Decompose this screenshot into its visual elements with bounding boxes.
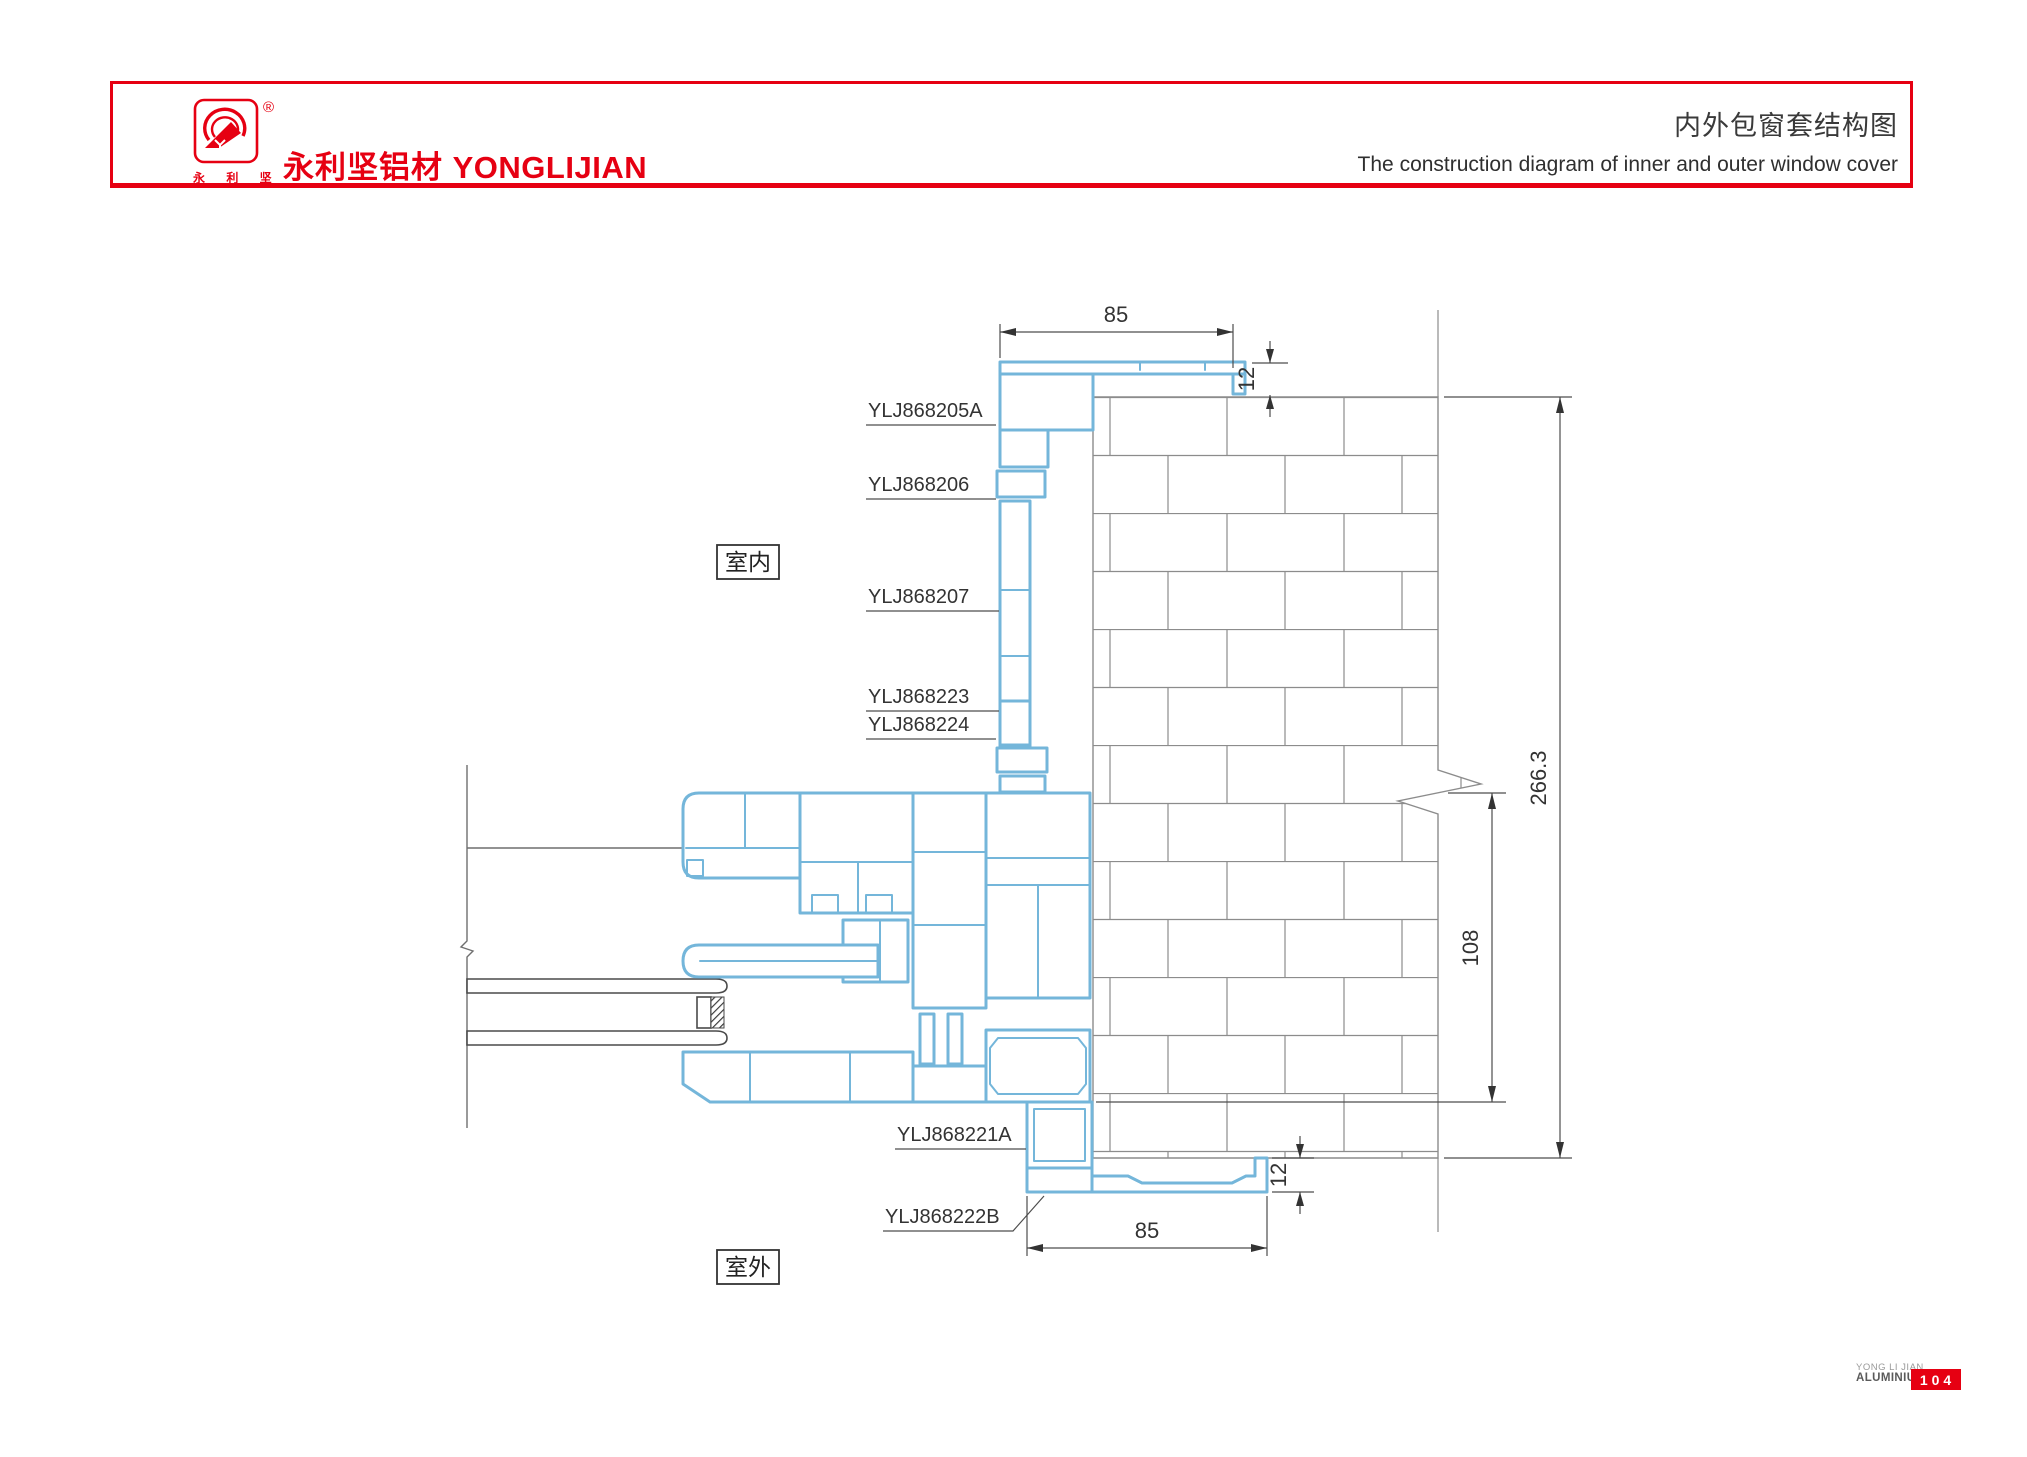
part-label-868206: YLJ868206 bbox=[866, 474, 996, 499]
svg-text:YLJ868223: YLJ868223 bbox=[868, 686, 969, 708]
svg-text:室外: 室外 bbox=[725, 1254, 771, 1280]
footer: YONG LI JIAN ALUMINIUM 104 bbox=[1856, 1363, 2016, 1399]
profile-868206 bbox=[997, 471, 1045, 497]
dim-bottom-width: 85 bbox=[1027, 1196, 1267, 1256]
construction-diagram: 85 12 266.3 10 bbox=[0, 0, 2027, 1457]
window-frame-assembly bbox=[683, 793, 1090, 1102]
part-label-868224: YLJ868224 bbox=[866, 714, 996, 739]
profile-868221A bbox=[1027, 1102, 1092, 1168]
glass-unit bbox=[467, 979, 727, 1045]
svg-text:YLJ868206: YLJ868206 bbox=[868, 474, 969, 496]
part-label-868207: YLJ868207 bbox=[866, 586, 999, 611]
svg-text:YLJ868207: YLJ868207 bbox=[868, 586, 969, 608]
svg-text:室内: 室内 bbox=[725, 549, 771, 575]
dim-top-width: 85 bbox=[1000, 302, 1233, 368]
glass-pane-inner bbox=[467, 1031, 727, 1045]
svg-text:YLJ868224: YLJ868224 bbox=[868, 714, 969, 736]
break-line bbox=[461, 765, 473, 1128]
part-label-868205A: YLJ868205A bbox=[866, 400, 996, 425]
svg-text:YLJ868221A: YLJ868221A bbox=[897, 1124, 1012, 1146]
wall-section bbox=[1093, 397, 1481, 1158]
part-label-868223: YLJ868223 bbox=[866, 686, 999, 711]
page: ® 永 利 坚 永利坚铝材 YONGLIJIAN 内外包窗套结构图 The co… bbox=[0, 0, 2027, 1457]
svg-text:12: 12 bbox=[1234, 367, 1259, 391]
part-label-868222B: YLJ868222B bbox=[883, 1196, 1044, 1231]
svg-text:YLJ868205A: YLJ868205A bbox=[868, 400, 983, 422]
glass-pane-outer bbox=[467, 979, 727, 993]
profile-868224 bbox=[997, 748, 1047, 792]
svg-text:108: 108 bbox=[1458, 930, 1483, 967]
svg-text:12: 12 bbox=[1266, 1163, 1291, 1187]
svg-text:85: 85 bbox=[1135, 1218, 1159, 1243]
glass-setting-block bbox=[697, 997, 711, 1028]
glass-spacer bbox=[711, 997, 724, 1028]
room-label-indoor: 室内 bbox=[717, 545, 779, 579]
room-label-outdoor: 室外 bbox=[717, 1250, 779, 1284]
profile-868223 bbox=[1000, 701, 1030, 745]
svg-text:YLJ868222B: YLJ868222B bbox=[885, 1206, 1000, 1228]
page-number-badge: 104 bbox=[1911, 1369, 1961, 1390]
part-label-868221A: YLJ868221A bbox=[895, 1124, 1026, 1149]
svg-text:266.3: 266.3 bbox=[1526, 750, 1551, 805]
svg-text:85: 85 bbox=[1104, 302, 1128, 327]
brick-wall bbox=[1093, 310, 1481, 1232]
